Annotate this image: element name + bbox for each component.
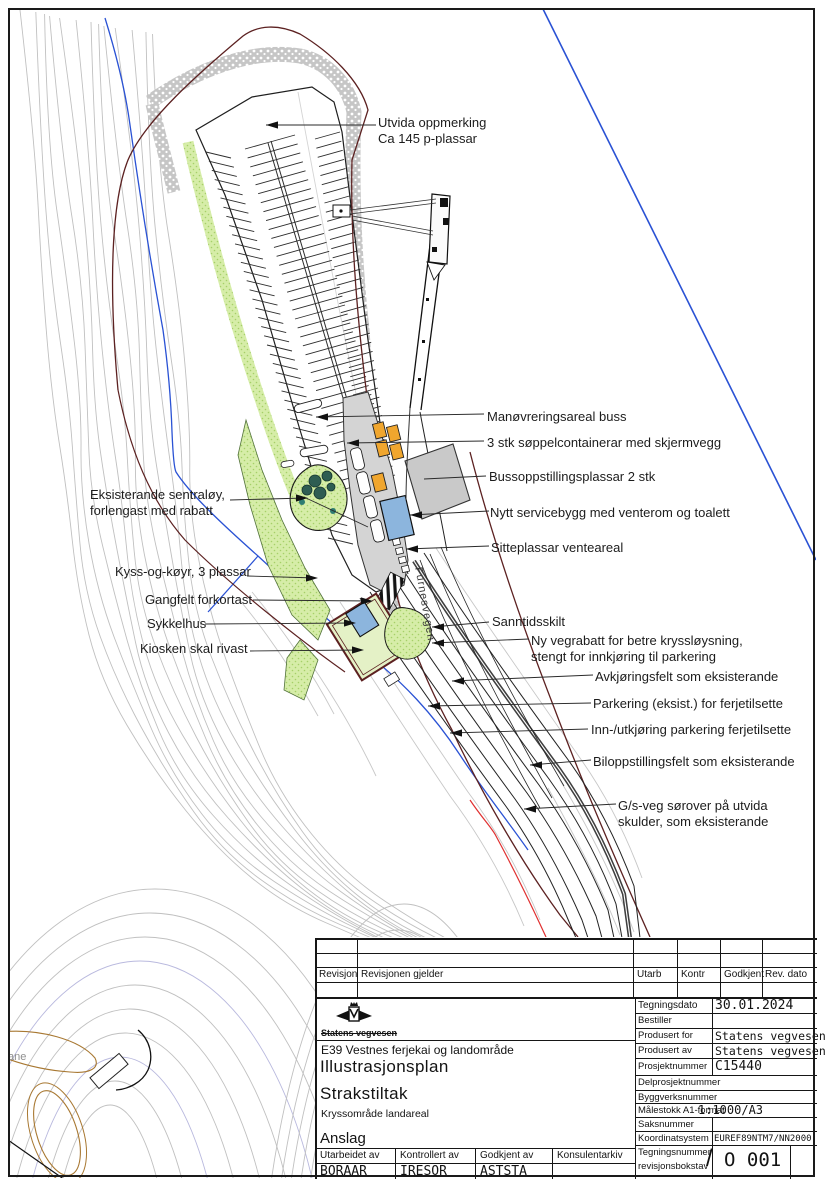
annotation-inn-utkjoring: Inn-/utkjøring parkering ferjetilsette bbox=[591, 722, 791, 738]
annotation-gs-veg: G/s-veg sørover på utvida skulder, som e… bbox=[618, 798, 768, 830]
field-label-bestiller: Bestiller bbox=[638, 1016, 672, 1026]
field-label-saksnummer: Saksnummer bbox=[638, 1120, 694, 1130]
project-title: E39 Vestnes ferjekai og landområde bbox=[321, 1044, 514, 1057]
annotation-kiosken: Kiosken skal rivast bbox=[140, 641, 248, 657]
rev-col-utarb: Utarb bbox=[637, 970, 661, 981]
annotation-avkjoringsfelt: Avkjøringsfelt som eksisterande bbox=[595, 669, 778, 685]
field-label-byggverksnummer: Byggverksnummer bbox=[638, 1093, 717, 1103]
rev-col-gjelder: Revisjonen gjelder bbox=[361, 970, 443, 981]
tb-line bbox=[315, 1040, 635, 1041]
annotation-kyss-og-koyr: Kyss-og-køyr, 3 plassar bbox=[115, 564, 251, 580]
sig-value-utarbeidet: BORAAR bbox=[320, 1165, 367, 1179]
field-label-produsert-for: Produsert for bbox=[638, 1031, 693, 1041]
field-label-delprosjektnummer: Delprosjektnummer bbox=[638, 1078, 720, 1088]
annotation-sentraloy: Eksisterande sentraløy, forlengast med r… bbox=[90, 487, 225, 519]
field-value-malestokk: 1:1000/A3 bbox=[698, 1104, 763, 1117]
annotation-ny-vegrabatt: Ny vegrabatt for betre kryssløysning, st… bbox=[531, 633, 743, 665]
field-value-tegningsnummer: O 001 bbox=[724, 1151, 781, 1171]
tb-line bbox=[712, 997, 713, 1075]
annotation-sanntidsskilt: Sanntidsskilt bbox=[492, 614, 565, 630]
field-label-tegningsdato: Tegningsdato bbox=[638, 1001, 698, 1012]
sig-header-kontrollert: Kontrollert av bbox=[400, 1151, 459, 1162]
annotation-servicebygg: Nytt servicebygg med venterom og toalett bbox=[490, 505, 730, 521]
annotation-parkering-ferjetilsette: Parkering (eksist.) for ferjetilsette bbox=[593, 696, 783, 712]
bus-parking-area bbox=[405, 444, 470, 519]
sig-header-utarbeidet: Utarbeidet av bbox=[320, 1151, 379, 1162]
sig-header-konsulentarkiv: Konsulentarkiv bbox=[557, 1151, 623, 1162]
tb-line bbox=[315, 967, 817, 968]
annotation-soppelcontainerar: 3 stk søppelcontainerar med skjermvegg bbox=[487, 435, 721, 451]
tb-line bbox=[635, 1090, 817, 1091]
field-label-tegningsnummer: Tegningsnummer bbox=[638, 1148, 711, 1158]
annotation-utvida-oppmerking: Utvida oppmerking Ca 145 p-plassar bbox=[378, 115, 486, 147]
red-utility-line bbox=[470, 800, 546, 937]
sig-header-godkjent: Godkjent av bbox=[480, 1151, 533, 1162]
field-label-revisjonsbokstav: revisjonsbokstav bbox=[638, 1162, 708, 1172]
rev-col-revisjon: Revisjon bbox=[319, 970, 357, 981]
tb-line bbox=[315, 938, 317, 1179]
tb-line bbox=[552, 1148, 553, 1179]
annotation-sitteplassar: Sitteplassar venteareal bbox=[491, 540, 623, 556]
tb-line bbox=[677, 938, 678, 997]
annotation-manovreringsareal-buss: Manøvreringsareal buss bbox=[487, 409, 626, 425]
tb-line bbox=[790, 1145, 791, 1179]
statens-vegvesen-logo-icon bbox=[335, 1000, 373, 1027]
sig-value-godkjent: ASTSTA bbox=[480, 1165, 527, 1179]
drawing-title-detail: Kryssområde landareal bbox=[321, 1109, 429, 1120]
waste-container bbox=[386, 425, 400, 442]
drawing-title-sub: Strakstiltak bbox=[320, 1085, 408, 1103]
tb-line bbox=[357, 938, 358, 997]
field-label-prosjektnummer: Prosjektnummer bbox=[638, 1062, 707, 1072]
logo-text: Statens vegvesen bbox=[321, 1029, 397, 1038]
tb-line bbox=[635, 1131, 817, 1132]
shore-label-fragment: ane bbox=[8, 1051, 26, 1063]
tb-line bbox=[315, 982, 817, 983]
title-block: Revisjon Revisjonen gjelder Utarb Kontr … bbox=[315, 938, 817, 1179]
tb-line bbox=[635, 1117, 817, 1118]
field-value-produsert-for: Statens vegvesen bbox=[715, 1030, 825, 1042]
field-value-prosjektnummer: C15440 bbox=[715, 1060, 762, 1074]
field-label-koordinatsystem: Koordinatsystem bbox=[638, 1134, 709, 1144]
tb-line bbox=[635, 1013, 817, 1014]
drawing-title-main: Illustrasjonsplan bbox=[320, 1058, 449, 1076]
field-label-produsert-av: Produsert av bbox=[638, 1046, 692, 1056]
field-value-produsert-av: Statens vegvesen bbox=[715, 1045, 825, 1057]
tb-line bbox=[315, 953, 817, 954]
tb-line bbox=[635, 1075, 817, 1076]
rev-col-revdato: Rev. dato bbox=[765, 970, 807, 981]
annotation-sykkelhus: Sykkelhus bbox=[147, 616, 206, 632]
drawing-sheet: Utvida oppmerking Ca 145 p-plassar Manøv… bbox=[0, 0, 825, 1187]
phase-label: Anslag bbox=[320, 1131, 366, 1147]
tb-line bbox=[315, 938, 817, 940]
tb-line bbox=[720, 938, 721, 997]
tb-line bbox=[475, 1148, 476, 1179]
annotation-biloppstillingsfelt: Biloppstillingsfelt som eksisterande bbox=[593, 754, 795, 770]
tb-line bbox=[635, 997, 636, 1179]
annotation-gangfelt: Gangfelt forkortast bbox=[145, 592, 252, 608]
field-value-tegningsdato: 30.01.2024 bbox=[715, 999, 793, 1013]
tegningsnummer-slash: / bbox=[706, 1146, 713, 1171]
annotation-bussoppstillingsplassar: Bussoppstillingsplassar 2 stk bbox=[489, 469, 655, 485]
tb-line bbox=[762, 938, 763, 997]
sig-value-kontrollert: IRESOR bbox=[400, 1165, 447, 1179]
rev-col-godkjent: Godkjent bbox=[724, 970, 764, 981]
tb-line bbox=[633, 938, 634, 997]
rev-col-kontr: Kontr bbox=[681, 970, 705, 981]
field-value-koordinatsystem: EUREF89NTM7/NN2000 bbox=[714, 1135, 812, 1144]
tb-line bbox=[395, 1148, 396, 1179]
waste-container bbox=[389, 443, 403, 460]
